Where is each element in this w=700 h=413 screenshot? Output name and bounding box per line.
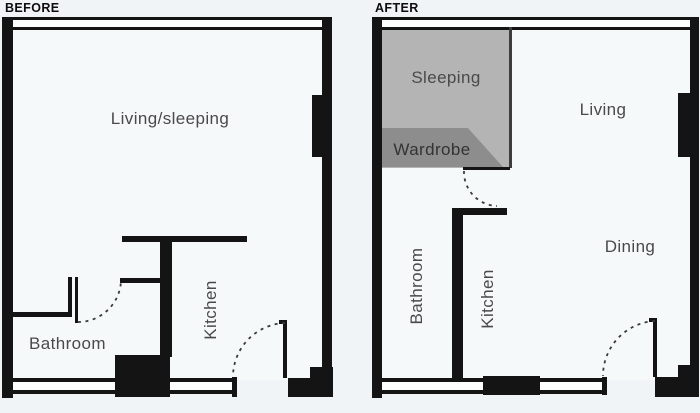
after-wardrobe-label: Wardrobe (385, 140, 479, 160)
after-dining-label: Dining (580, 237, 680, 257)
before-entry-door-jamb (232, 377, 237, 397)
before-bottom-window-right (170, 378, 237, 394)
before-bathroom-door-jamb (68, 277, 72, 315)
before-hall-wall (120, 278, 160, 283)
after-entry-door-leaf (653, 320, 657, 377)
before-header: BEFORE (5, 1, 60, 15)
before-bathroom-label: Bathroom (20, 334, 115, 354)
after-entry-block (655, 377, 699, 397)
before-bathroom-wall (2, 312, 72, 317)
before-kitchen-top-wall (122, 236, 247, 242)
after-entry-door-jamb (602, 377, 607, 395)
floorplan-canvas: BEFORE Living/sleeping Bathroom Kitchen … (0, 0, 700, 413)
before-left-wall (2, 17, 13, 398)
after-right-wall-pier (678, 93, 699, 157)
before-top-window (13, 17, 322, 30)
before-right-wall (322, 17, 332, 397)
after-bathroom-label: Bathroom (407, 248, 427, 325)
after-right-wall (690, 17, 699, 397)
before-entry-door-hinge (279, 320, 287, 324)
after-sleeping-label: Sleeping (383, 68, 509, 88)
before-entry-door-leaf (283, 322, 287, 378)
before-bottom-block (115, 355, 170, 397)
before-kitchen-wall (160, 236, 172, 357)
after-bottom-window-right (540, 378, 602, 394)
before-right-wall-pier (312, 95, 332, 157)
after-living-label: Living (553, 100, 653, 120)
after-entry-block-step (678, 365, 699, 377)
after-entry-door-hinge (649, 318, 657, 322)
before-living-sleeping-label: Living/sleeping (85, 109, 255, 129)
after-sleeping-door-wall (463, 167, 510, 170)
before-kitchen-label: Kitchen (201, 280, 221, 340)
before-entry-block-step (310, 367, 333, 379)
after-sleeping-divider-wall (509, 27, 512, 168)
before-bottom-window-left (13, 378, 115, 394)
after-left-wall (372, 17, 382, 398)
after-header: AFTER (375, 1, 419, 15)
after-bottom-window-left (382, 378, 483, 394)
after-bottom-block (483, 376, 540, 395)
before-bathroom-door-leaf (75, 277, 78, 323)
after-kitchen-wall (452, 208, 463, 380)
after-top-window (382, 17, 690, 30)
before-entry-block (288, 378, 333, 397)
after-kitchen-label: Kitchen (478, 269, 498, 329)
